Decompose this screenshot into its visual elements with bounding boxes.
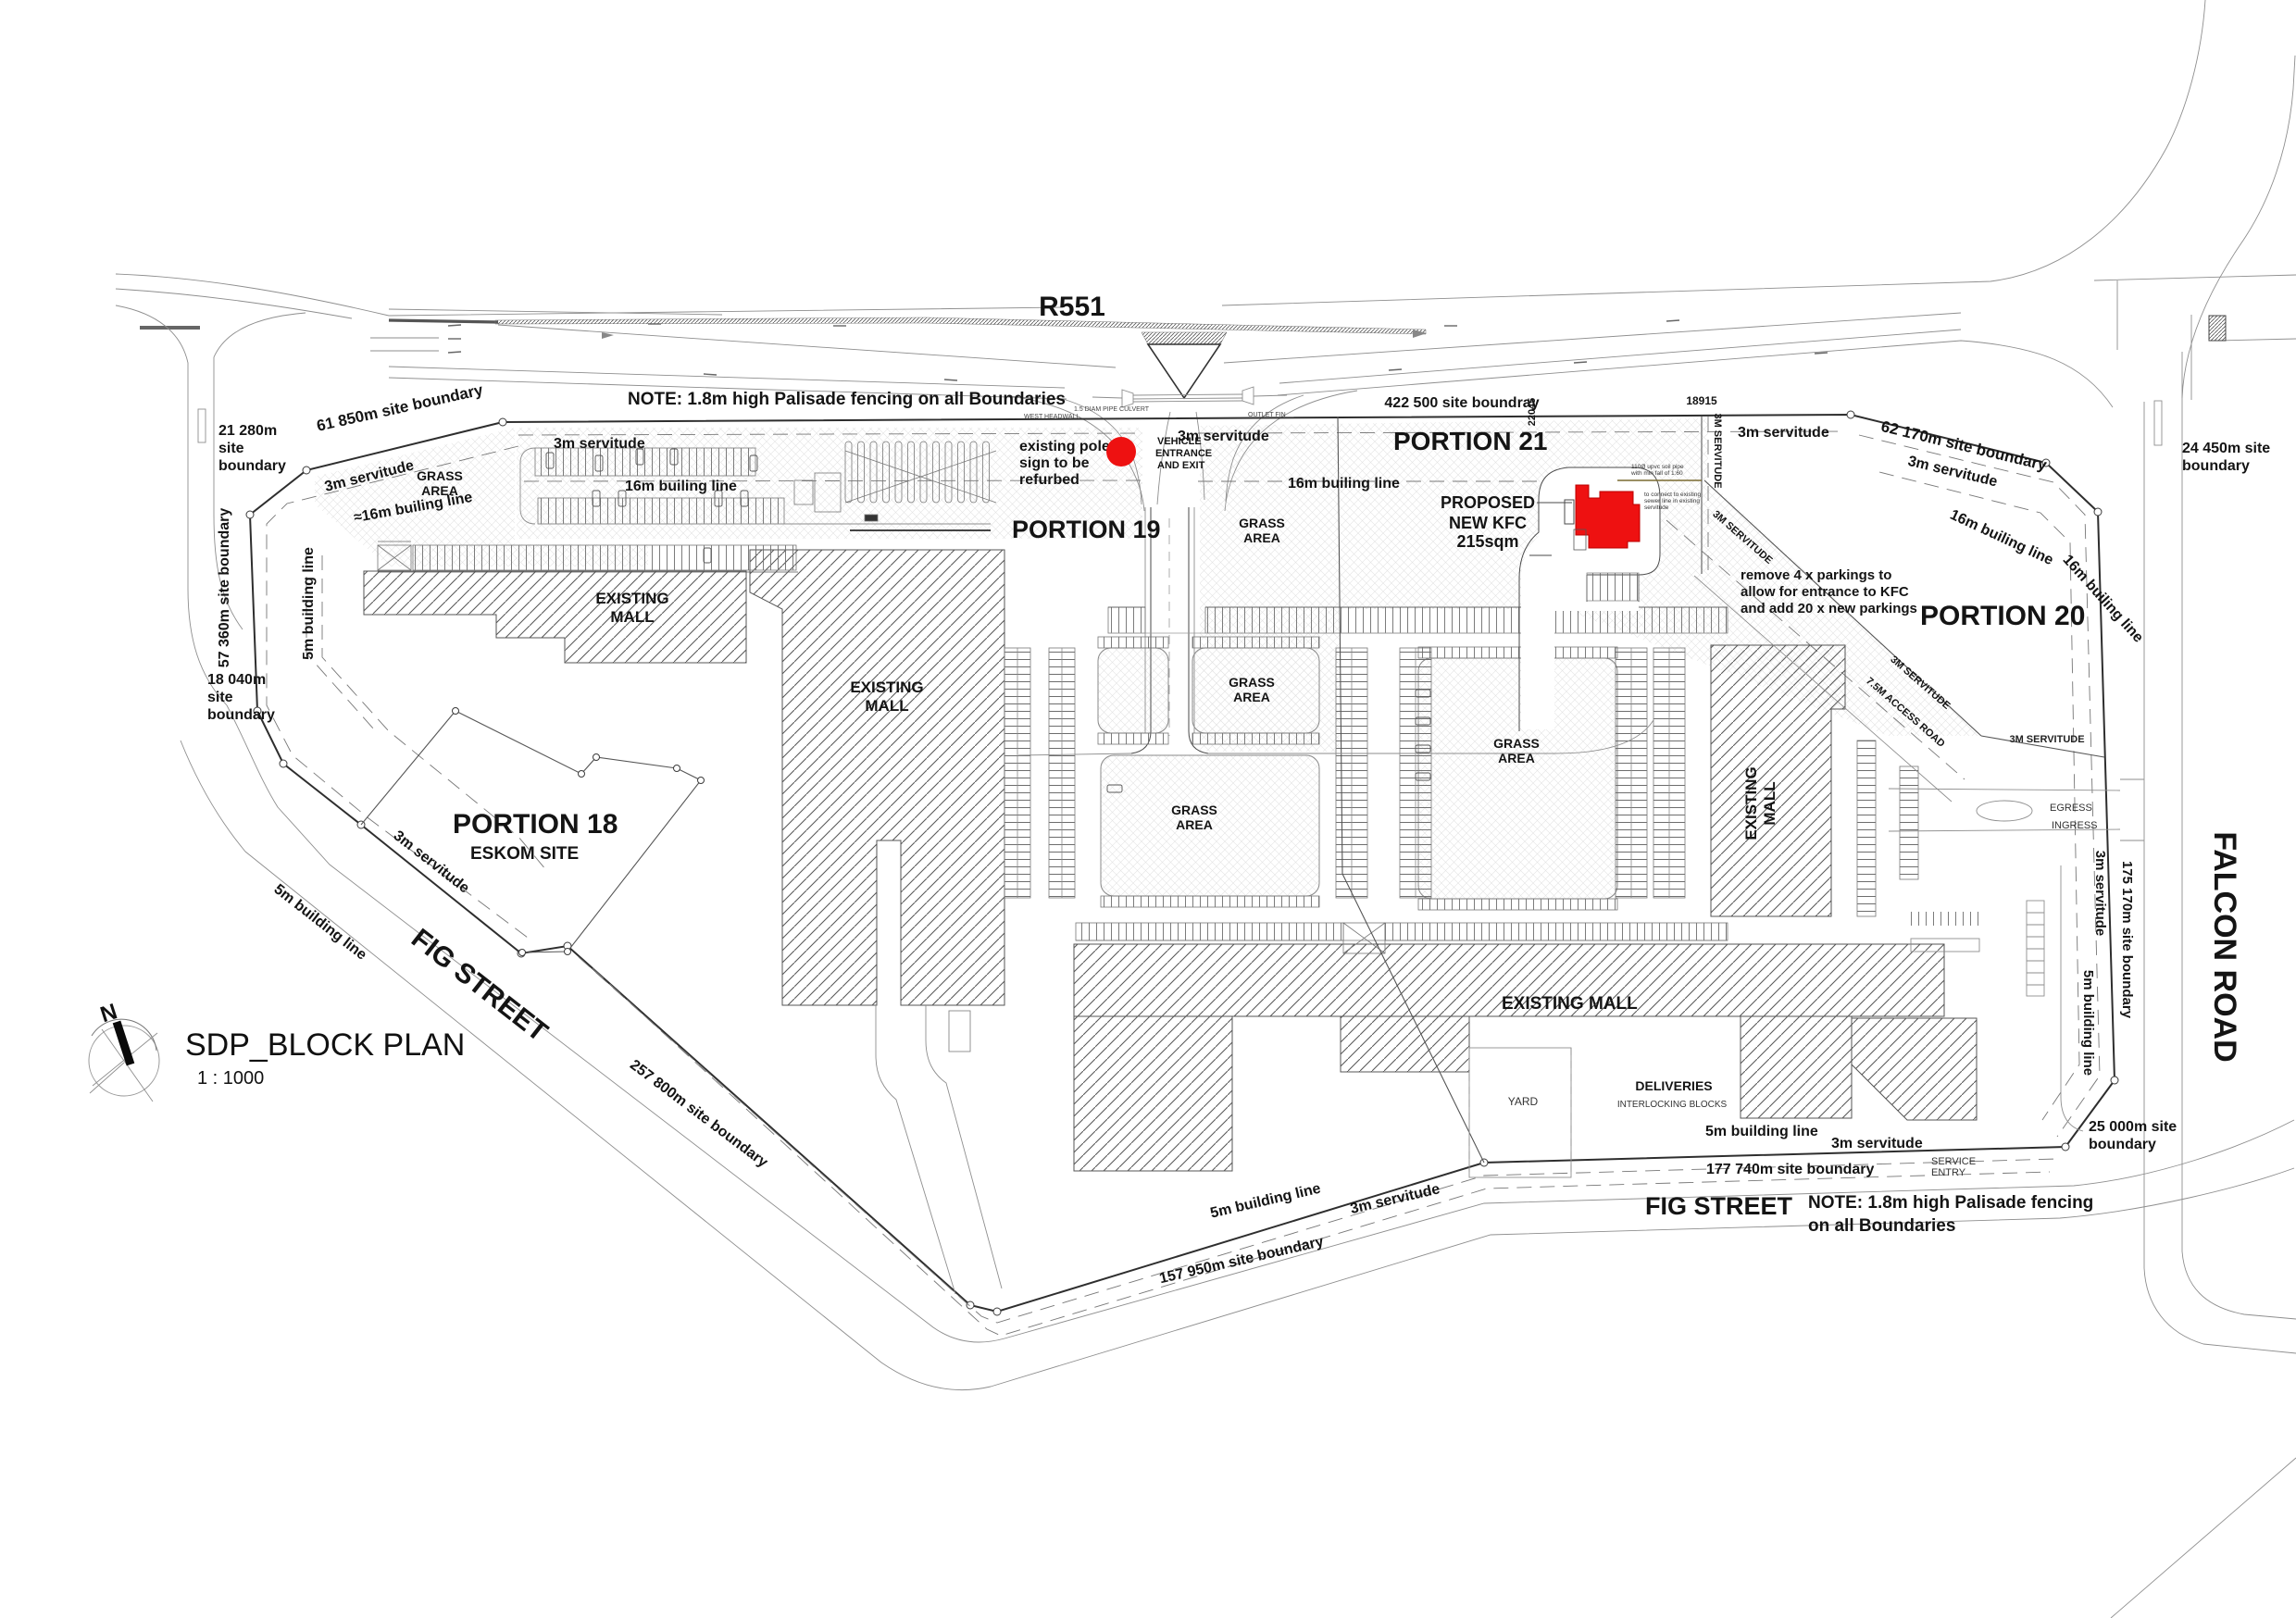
svg-text:GRASS: GRASS <box>1239 516 1285 530</box>
svg-text:21 280m: 21 280m <box>218 423 277 439</box>
svg-text:1.5 DIAM PIPE CULVERT: 1.5 DIAM PIPE CULVERT <box>1074 406 1150 413</box>
svg-text:1 : 1000: 1 : 1000 <box>197 1068 264 1089</box>
svg-text:SDP_BLOCK PLAN: SDP_BLOCK PLAN <box>185 1027 465 1063</box>
svg-text:PORTION 18: PORTION 18 <box>453 809 618 840</box>
svg-text:AREA: AREA <box>1498 751 1535 765</box>
svg-text:remove 4 x parkings to: remove 4 x parkings to <box>1741 567 1891 583</box>
svg-text:to connect to existing: to connect to existing <box>1644 492 1701 498</box>
svg-text:PROPOSED: PROPOSED <box>1441 493 1535 512</box>
svg-text:57 360m site boundary: 57 360m site boundary <box>217 508 232 668</box>
svg-text:INTERLOCKING BLOCKS: INTERLOCKING BLOCKS <box>1617 1100 1728 1110</box>
svg-text:3m servitude: 3m servitude <box>1831 1136 1923 1151</box>
svg-text:3m servitude: 3m servitude <box>1738 425 1829 441</box>
svg-text:DELIVERIES: DELIVERIES <box>1635 1078 1712 1093</box>
svg-text:PORTION 21: PORTION 21 <box>1393 427 1547 455</box>
svg-text:MALL: MALL <box>865 697 908 715</box>
svg-text:site: site <box>207 690 233 705</box>
svg-text:MALL: MALL <box>1761 781 1778 825</box>
svg-text:PORTION 20: PORTION 20 <box>1920 601 2085 631</box>
svg-text:GRASS: GRASS <box>1171 803 1217 817</box>
svg-text:FIG STREET: FIG STREET <box>1645 1192 1793 1220</box>
svg-text:site: site <box>218 441 244 456</box>
svg-text:EGRESS: EGRESS <box>2050 803 2092 814</box>
svg-text:5m building line: 5m building line <box>1705 1124 1818 1139</box>
svg-text:175 170m site boundary: 175 170m site boundary <box>2119 861 2135 1019</box>
svg-text:with min fall of 1:60: with min fall of 1:60 <box>1630 470 1683 477</box>
svg-text:boundary: boundary <box>2089 1137 2156 1152</box>
svg-text:AREA: AREA <box>1243 530 1280 545</box>
svg-text:NOTE: 1.8m high Palisade fenci: NOTE: 1.8m high Palisade fencing on all … <box>628 390 1066 409</box>
svg-text:GRASS: GRASS <box>417 468 463 483</box>
svg-text:5m building line: 5m building line <box>2080 970 2096 1076</box>
svg-text:YARD: YARD <box>1508 1095 1539 1108</box>
svg-text:ESKOM SITE: ESKOM SITE <box>470 844 579 864</box>
svg-text:EXISTING MALL: EXISTING MALL <box>1502 994 1638 1014</box>
svg-text:ENTRANCE: ENTRANCE <box>1155 448 1212 459</box>
svg-text:18 040m: 18 040m <box>207 672 266 688</box>
svg-text:allow for entrance to KFC: allow for entrance to KFC <box>1741 584 1909 600</box>
svg-text:boundary: boundary <box>218 458 286 474</box>
svg-text:EXISTING: EXISTING <box>1742 766 1760 840</box>
svg-text:18915: 18915 <box>1686 394 1717 407</box>
svg-text:servitude: servitude <box>1644 504 1669 511</box>
svg-text:sign to be: sign to be <box>1019 455 1090 471</box>
svg-text:sewer line in existing: sewer line in existing <box>1644 498 1700 504</box>
svg-text:INGRESS: INGRESS <box>2052 820 2098 831</box>
svg-text:boundary: boundary <box>207 707 275 723</box>
svg-text:AND EXIT: AND EXIT <box>1157 460 1205 471</box>
svg-text:3m servitude: 3m servitude <box>2092 851 2108 937</box>
svg-text:on all Boundaries: on all Boundaries <box>1808 1216 1955 1236</box>
svg-text:AREA: AREA <box>1176 817 1213 832</box>
svg-text:25 000m site: 25 000m site <box>2089 1119 2177 1135</box>
svg-text:PORTION 19: PORTION 19 <box>1012 516 1161 543</box>
svg-text:5m building line: 5m building line <box>301 547 317 660</box>
svg-text:16m builing line: 16m builing line <box>625 479 737 494</box>
svg-text:SERVICE: SERVICE <box>1931 1156 1976 1167</box>
svg-text:110Ø upvc soil pipe: 110Ø upvc soil pipe <box>1631 464 1684 470</box>
svg-text:3M SERVITUDE: 3M SERVITUDE <box>1712 413 1723 488</box>
svg-text:FALCON ROAD: FALCON ROAD <box>2207 831 2242 1062</box>
svg-text:177 740m site boundary: 177 740m site boundary <box>1706 1162 1875 1177</box>
svg-text:boundary: boundary <box>2182 458 2250 474</box>
svg-text:R551: R551 <box>1039 292 1105 322</box>
svg-text:NEW KFC: NEW KFC <box>1449 514 1527 532</box>
svg-text:24 450m site: 24 450m site <box>2182 441 2270 456</box>
svg-text:EXISTING: EXISTING <box>850 678 923 696</box>
svg-text:existing pole: existing pole <box>1019 439 1110 454</box>
svg-text:22045: 22045 <box>1527 398 1538 427</box>
svg-text:3m servitude: 3m servitude <box>554 436 645 452</box>
svg-text:215sqm: 215sqm <box>1456 532 1518 551</box>
svg-text:16m builing line: 16m builing line <box>1288 476 1400 492</box>
svg-text:refurbed: refurbed <box>1019 472 1079 488</box>
svg-text:GRASS: GRASS <box>1229 675 1275 690</box>
svg-text:3m servitude: 3m servitude <box>1178 429 1269 444</box>
svg-text:GRASS: GRASS <box>1493 736 1540 751</box>
svg-text:3M SERVITUDE: 3M SERVITUDE <box>2009 734 2084 745</box>
svg-text:EXISTING: EXISTING <box>595 590 668 607</box>
svg-text:NOTE: 1.8m high Palisade fenci: NOTE: 1.8m high Palisade fencing <box>1808 1193 2093 1213</box>
svg-text:AREA: AREA <box>1233 690 1270 704</box>
svg-text:MALL: MALL <box>610 608 654 626</box>
svg-text:422 500 site boundray: 422 500 site boundray <box>1384 395 1539 411</box>
svg-text:and add 20 x new parkings: and add 20 x new parkings <box>1741 601 1917 616</box>
svg-text:ENTRY: ENTRY <box>1931 1167 1966 1178</box>
